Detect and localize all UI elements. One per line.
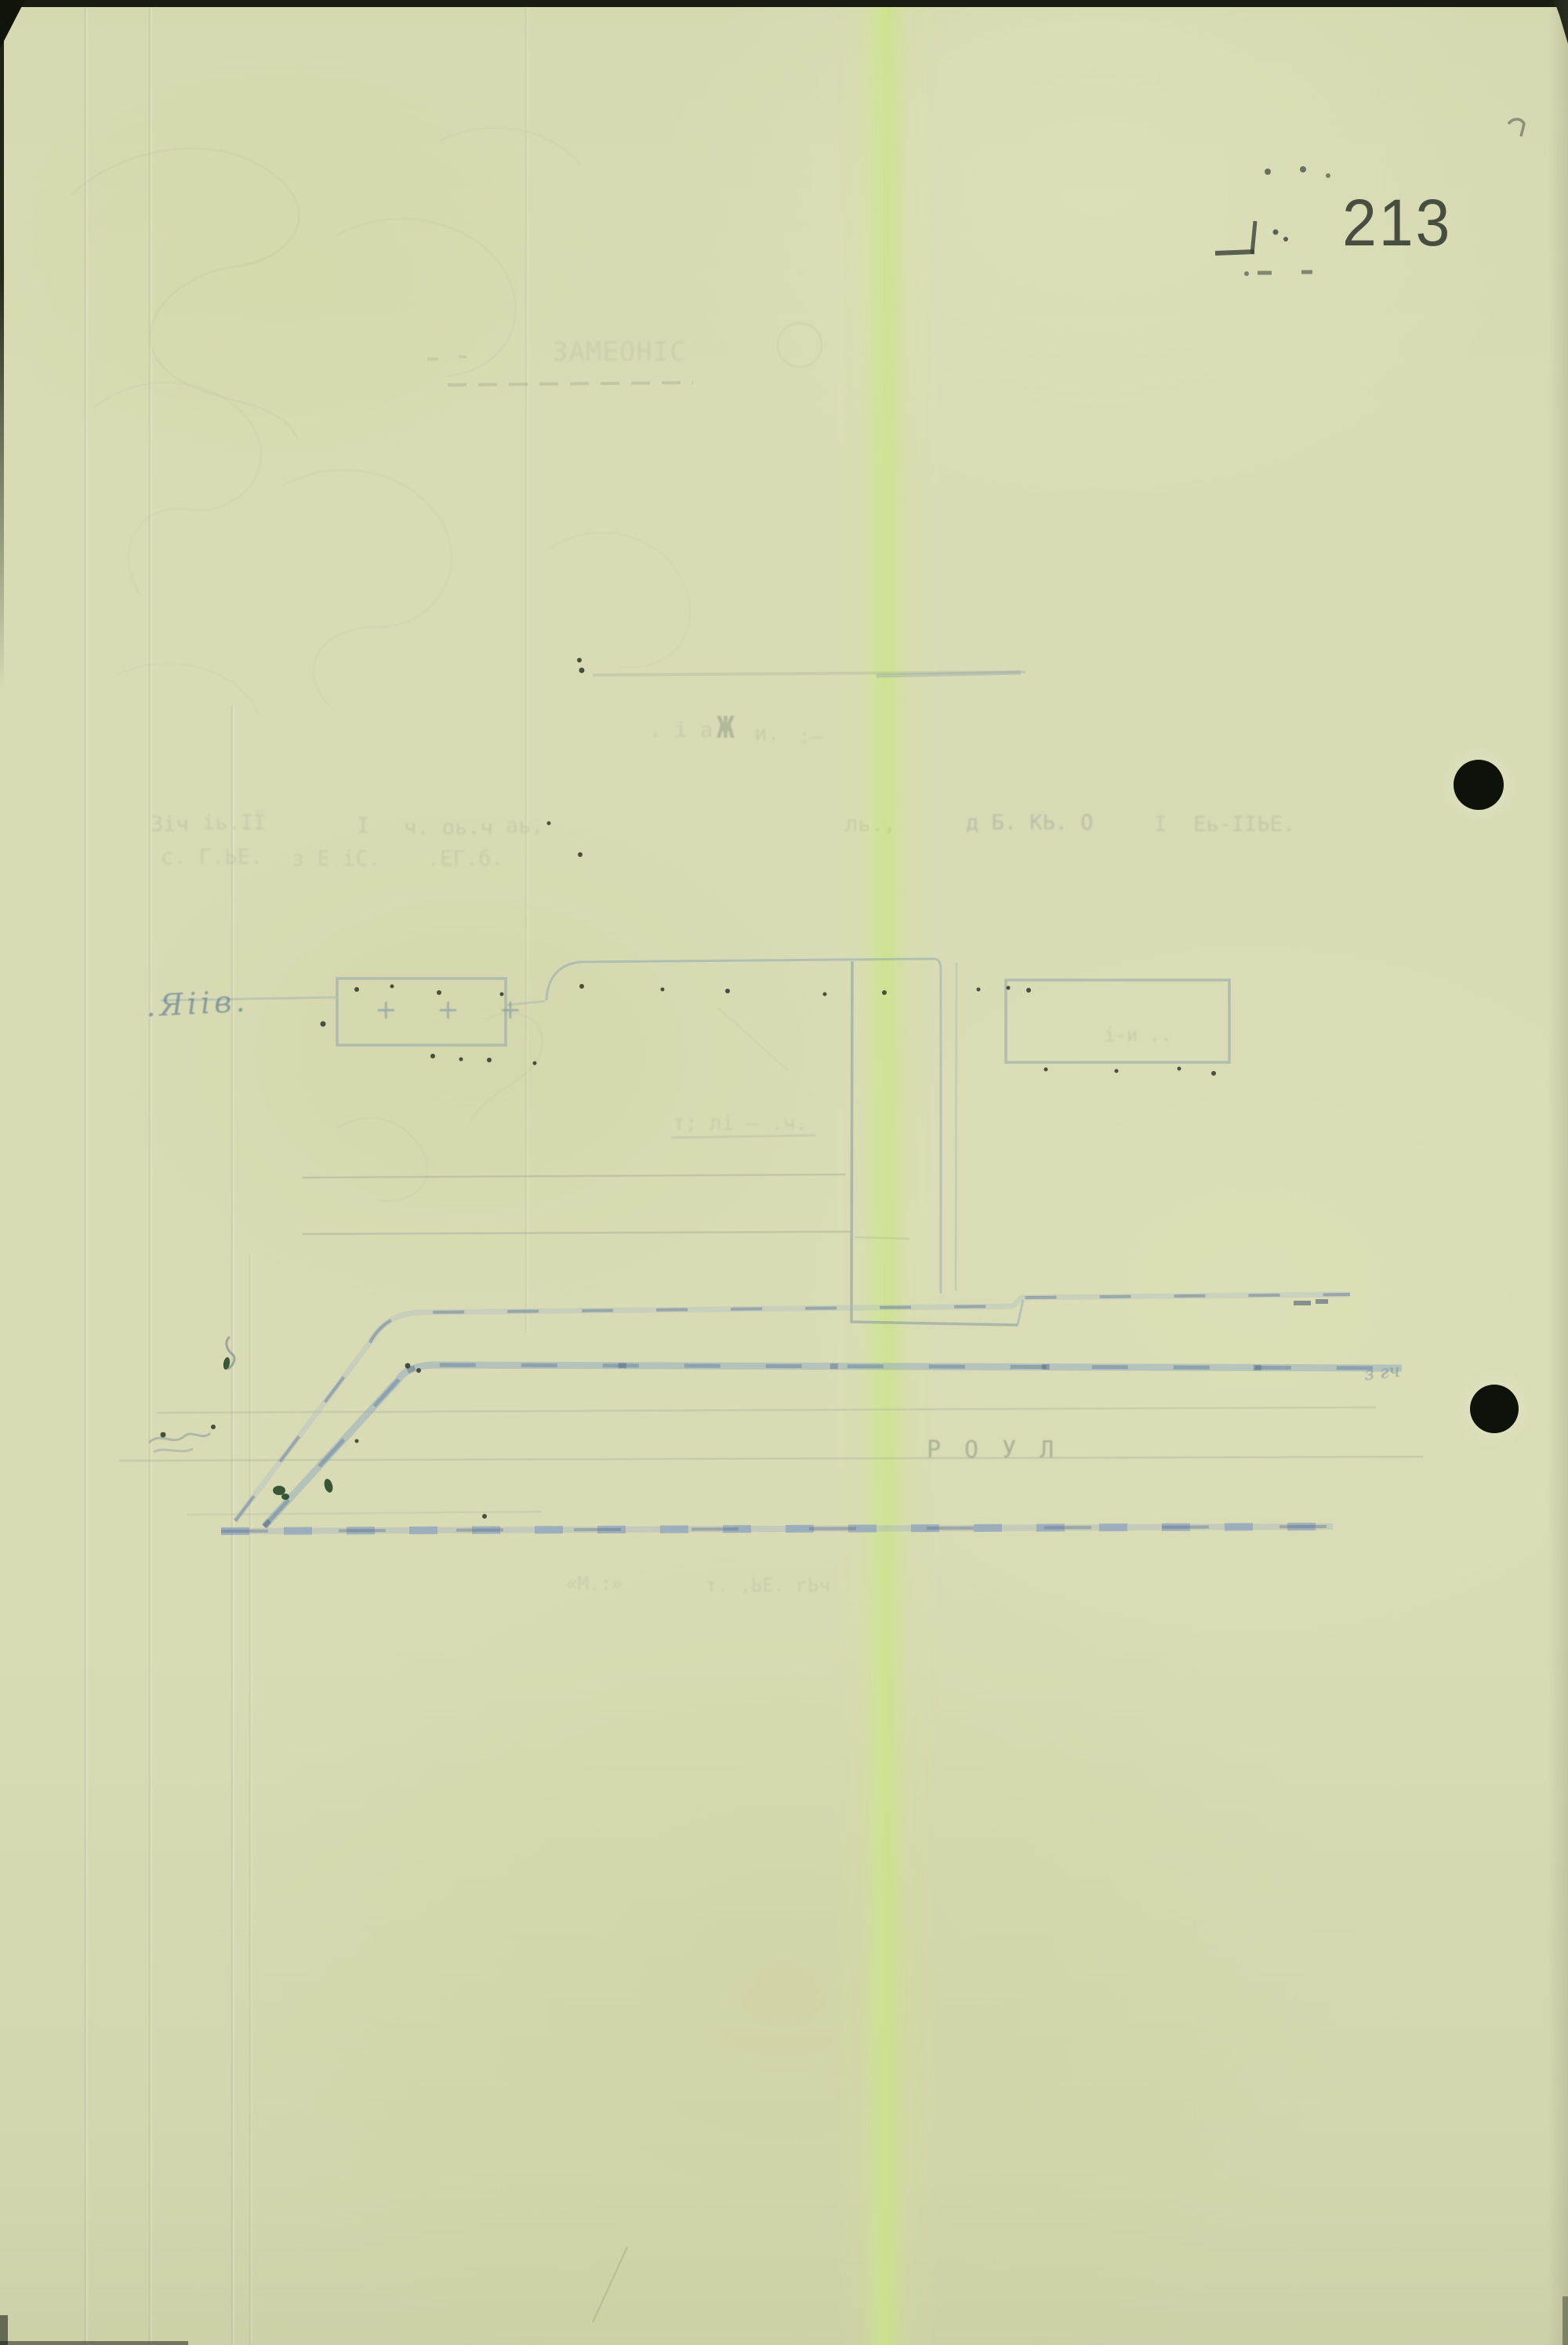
scan-edge-top <box>0 0 1568 7</box>
ink-specks <box>161 658 1217 1519</box>
typed-fragment: іь.ІЇ <box>202 811 266 835</box>
margin-note-blue: .Яіів. <box>145 984 249 1024</box>
left-box-plus-symbols: + + + <box>375 994 537 1025</box>
typed-fragment: ч. оь.ч <box>404 815 493 840</box>
right-edge-shadow <box>1548 0 1568 2345</box>
punch-hole <box>1454 760 1504 810</box>
road-outline <box>161 959 1023 1325</box>
typed-fragment: ль., <box>845 812 896 837</box>
typed-heading-right: и. <box>754 721 780 746</box>
punch-hole <box>1470 1385 1519 1433</box>
under-track-note-left: «М.:» <box>566 1573 622 1595</box>
under-box-note: т; лі — .ч. <box>673 1112 808 1135</box>
typed-fragment: І <box>1154 812 1167 837</box>
typed-fragment: с. Г.ЬЕ. <box>161 845 263 869</box>
scan-edge-bottom <box>0 2341 188 2345</box>
pencil-lines <box>119 1174 1423 1515</box>
typed-fragment: аь, <box>506 814 544 838</box>
typed-fragment: Зіч <box>151 812 189 837</box>
track-diagram <box>0 0 1568 2345</box>
bleedthrough-heading: ЗАМЕОНІС <box>552 336 687 368</box>
right-box-marks: і-и .. <box>1104 1024 1172 1046</box>
bottom-crease <box>593 2247 627 2322</box>
railway-track-bottom <box>221 1526 1333 1531</box>
bleedthrough-contours <box>71 128 822 1201</box>
typed-fragment: І <box>357 814 369 838</box>
scan-edge-left <box>0 0 4 690</box>
typed-fragment: д Б. КЬ. О <box>966 811 1094 835</box>
green-ink-blobs <box>223 1356 334 1500</box>
right-box <box>1006 980 1229 1062</box>
under-track-note-right: т. ,ЬЕ. гЬч <box>706 1574 830 1596</box>
typed-fragment: .ЕГ.б. <box>427 847 504 871</box>
scanned-archive-page: ЗАМЕОНІС . і а Ж и. :— Зіч іь.ІЇ І ч. оь… <box>0 0 1568 2345</box>
typed-heading-x: Ж <box>717 710 735 745</box>
railway-track-main <box>264 1365 1402 1526</box>
typed-heading-tail: :— <box>798 724 824 749</box>
typed-fragment: з Е іС. <box>292 847 381 871</box>
typed-heading-left: . і а <box>649 718 713 742</box>
siding-letters: РОУЛ <box>927 1436 1077 1464</box>
scan-corner-bottom-left <box>0 2315 8 2345</box>
track-end-marks: з гч <box>1363 1361 1401 1385</box>
typed-fragment: Еь-ІІЬЕ. <box>1193 812 1295 837</box>
page-number-stamp: 213 <box>1342 185 1452 261</box>
